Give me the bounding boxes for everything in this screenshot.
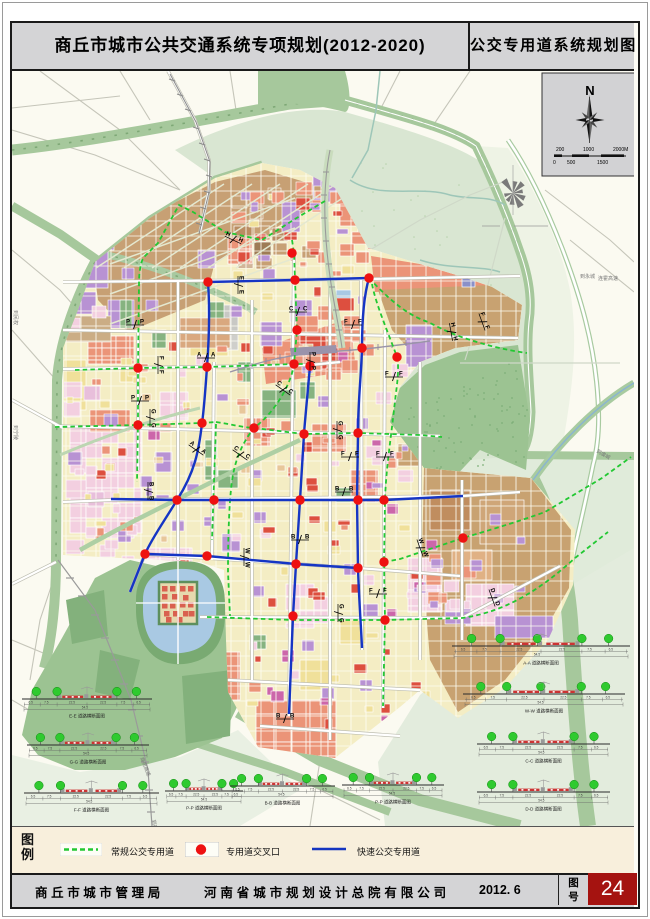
- svg-text:54.5: 54.5: [201, 798, 207, 802]
- svg-text:E: E: [238, 276, 244, 280]
- svg-text:F: F: [399, 372, 403, 378]
- svg-text:F: F: [383, 589, 387, 595]
- svg-text:7.5: 7.5: [586, 696, 591, 700]
- svg-text:7.5: 7.5: [359, 787, 364, 791]
- svg-text:22.5: 22.5: [212, 793, 218, 797]
- svg-text:6.5: 6.5: [31, 795, 36, 799]
- svg-text:7.5: 7.5: [310, 788, 315, 792]
- svg-text:6.5: 6.5: [143, 795, 148, 799]
- svg-text:F: F: [158, 356, 164, 360]
- svg-text:22.5: 22.5: [69, 701, 75, 705]
- svg-text:22.5: 22.5: [525, 746, 531, 750]
- svg-text:7.5: 7.5: [178, 793, 183, 797]
- svg-text:F: F: [385, 372, 389, 378]
- svg-text:54.5: 54.5: [538, 701, 544, 705]
- svg-text:6.5: 6.5: [29, 701, 34, 705]
- svg-text:B-B 道路横断面图: B-B 道路横断面图: [265, 800, 301, 807]
- svg-text:7.5: 7.5: [420, 787, 425, 791]
- svg-text:E: E: [238, 290, 244, 294]
- svg-text:F-F 道路横断面图: F-F 道路横断面图: [74, 807, 110, 814]
- svg-text:P: P: [145, 396, 149, 402]
- svg-text:P-P 道路横断面图: P-P 道路横断面图: [186, 805, 222, 812]
- svg-text:P: P: [140, 320, 144, 326]
- svg-text:D-D 道路横断面图: D-D 道路横断面图: [525, 806, 562, 813]
- svg-text:B: B: [335, 487, 340, 493]
- svg-text:G: G: [338, 604, 344, 609]
- svg-text:6.5: 6.5: [471, 696, 476, 700]
- svg-text:7.5: 7.5: [578, 794, 583, 798]
- svg-text:F: F: [390, 452, 394, 458]
- svg-text:6.5: 6.5: [594, 746, 599, 750]
- svg-text:7.5: 7.5: [248, 788, 253, 792]
- svg-text:22.5: 22.5: [100, 701, 106, 705]
- svg-text:22.5: 22.5: [293, 788, 299, 792]
- svg-text:6.5: 6.5: [169, 793, 174, 797]
- svg-text:2000M: 2000M: [613, 147, 628, 153]
- svg-text:6.5: 6.5: [347, 787, 352, 791]
- svg-text:G: G: [338, 618, 344, 623]
- svg-text:到永城: 到永城: [580, 273, 595, 280]
- svg-text:F: F: [358, 320, 362, 326]
- svg-text:6.5: 6.5: [484, 746, 489, 750]
- svg-text:7.5: 7.5: [491, 696, 496, 700]
- svg-text:N: N: [585, 83, 594, 98]
- svg-text:7.5: 7.5: [482, 648, 487, 652]
- svg-text:500: 500: [567, 160, 576, 166]
- svg-text:7.5: 7.5: [120, 747, 125, 751]
- svg-text:22.5: 22.5: [521, 696, 527, 700]
- svg-text:22.5: 22.5: [557, 794, 563, 798]
- svg-text:54.5: 54.5: [278, 793, 284, 797]
- svg-text:1500: 1500: [597, 160, 608, 166]
- svg-text:7.5: 7.5: [121, 701, 126, 705]
- svg-text:54.5: 54.5: [534, 653, 540, 657]
- svg-text:B: B: [349, 487, 354, 493]
- svg-text:C-C 道路横断面图: C-C 道路横断面图: [525, 758, 562, 765]
- svg-text:B: B: [291, 535, 296, 541]
- svg-text:7.5: 7.5: [224, 793, 229, 797]
- svg-text:6.5: 6.5: [136, 701, 141, 705]
- svg-text:22.5: 22.5: [73, 795, 79, 799]
- svg-text:6.5: 6.5: [484, 794, 489, 798]
- svg-text:22.5: 22.5: [525, 794, 531, 798]
- svg-text:7.5: 7.5: [127, 795, 132, 799]
- svg-text:54.5: 54.5: [86, 800, 92, 804]
- svg-text:22.5: 22.5: [193, 793, 199, 797]
- svg-text:22.5: 22.5: [379, 787, 385, 791]
- svg-text:F: F: [344, 320, 348, 326]
- svg-text:6.5: 6.5: [234, 793, 239, 797]
- svg-text:P: P: [126, 320, 130, 326]
- svg-text:7.5: 7.5: [44, 701, 49, 705]
- svg-text:P: P: [310, 352, 316, 356]
- svg-text:G: G: [150, 409, 156, 414]
- svg-text:A: A: [197, 353, 202, 359]
- svg-text:7.5: 7.5: [500, 746, 505, 750]
- svg-text:1000: 1000: [583, 147, 594, 153]
- svg-text:54.5: 54.5: [389, 792, 395, 796]
- svg-text:6.5: 6.5: [606, 696, 611, 700]
- svg-text:G-G 道路横断面图: G-G 道路横断面图: [70, 759, 107, 766]
- svg-text:22.5: 22.5: [268, 788, 274, 792]
- svg-text:C: C: [289, 307, 294, 313]
- svg-text:6.5: 6.5: [609, 648, 614, 652]
- svg-text:22.5: 22.5: [560, 696, 566, 700]
- svg-text:22.5: 22.5: [557, 746, 563, 750]
- svg-text:F: F: [341, 452, 345, 458]
- svg-text:6.5: 6.5: [33, 747, 38, 751]
- svg-text:7.5: 7.5: [47, 795, 52, 799]
- svg-text:到宁陵: 到宁陵: [12, 425, 19, 440]
- svg-text:到民权: 到民权: [12, 310, 19, 325]
- svg-text:54.5: 54.5: [83, 752, 89, 756]
- svg-text:A-A 道路横断面图: A-A 道路横断面图: [523, 660, 559, 667]
- svg-text:B: B: [305, 535, 310, 541]
- svg-text:F: F: [369, 589, 373, 595]
- svg-text:22.5: 22.5: [100, 747, 106, 751]
- svg-text:W: W: [244, 548, 250, 554]
- svg-text:G: G: [337, 421, 343, 426]
- svg-text:B: B: [276, 714, 281, 720]
- svg-text:B: B: [290, 714, 295, 720]
- svg-text:P-P 道路横断面图: P-P 道路横断面图: [375, 799, 411, 806]
- svg-text:7.5: 7.5: [48, 747, 53, 751]
- svg-text:W-W 道路横断面图: W-W 道路横断面图: [525, 708, 564, 715]
- svg-text:连霍高速: 连霍高速: [598, 275, 618, 282]
- svg-text:6.5: 6.5: [594, 794, 599, 798]
- svg-text:54.5: 54.5: [538, 751, 544, 755]
- svg-text:22.5: 22.5: [516, 648, 522, 652]
- svg-text:W: W: [244, 562, 250, 568]
- svg-text:C: C: [303, 307, 308, 313]
- svg-text:6.5: 6.5: [432, 787, 437, 791]
- svg-text:22.5: 22.5: [559, 648, 565, 652]
- svg-text:E-E 道路横断面图: E-E 道路横断面图: [69, 713, 105, 720]
- svg-text:A: A: [211, 353, 216, 359]
- svg-text:F: F: [158, 370, 164, 374]
- svg-text:7.5: 7.5: [578, 746, 583, 750]
- svg-text:200: 200: [556, 147, 565, 153]
- svg-text:P: P: [310, 366, 316, 370]
- svg-text:6.5: 6.5: [461, 648, 466, 652]
- svg-text:54.5: 54.5: [82, 706, 88, 710]
- svg-text:22.5: 22.5: [105, 795, 111, 799]
- svg-text:B: B: [148, 482, 154, 487]
- svg-text:22.5: 22.5: [403, 787, 409, 791]
- svg-text:54.5: 54.5: [538, 799, 544, 803]
- svg-text:6.5: 6.5: [235, 788, 240, 792]
- svg-text:G: G: [337, 435, 343, 440]
- svg-text:B: B: [148, 496, 154, 501]
- svg-text:6.5: 6.5: [134, 747, 139, 751]
- svg-text:6.5: 6.5: [322, 788, 327, 792]
- svg-text:7.5: 7.5: [587, 648, 592, 652]
- svg-text:P: P: [131, 396, 135, 402]
- svg-text:F: F: [376, 452, 380, 458]
- svg-text:22.5: 22.5: [71, 747, 77, 751]
- svg-text:F: F: [355, 452, 359, 458]
- svg-text:G: G: [150, 423, 156, 428]
- svg-text:7.5: 7.5: [500, 794, 505, 798]
- svg-text:0: 0: [553, 160, 556, 166]
